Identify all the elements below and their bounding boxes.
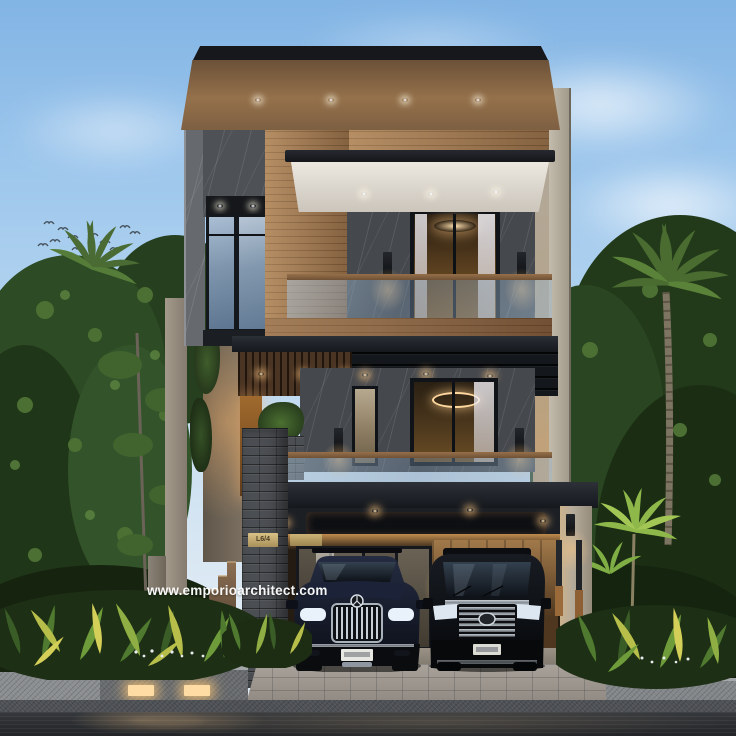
window-transom	[206, 234, 268, 236]
roof-soffit-wood	[181, 60, 560, 130]
planting-bed-mid	[222, 596, 312, 668]
left-tower-soffit	[206, 196, 268, 214]
downlight	[255, 98, 261, 102]
downlight	[475, 98, 481, 102]
downlight	[493, 190, 499, 194]
watermark: www.emporioarchitect.com	[147, 583, 328, 598]
third-floor-canopy-soffit	[291, 162, 549, 212]
planter-step-light	[184, 685, 210, 696]
wheel	[437, 662, 461, 671]
side-mirror	[541, 598, 551, 609]
ring-chandelier	[432, 392, 480, 408]
planter-step-light	[128, 685, 154, 696]
downlight	[217, 204, 223, 208]
planting-bed-right	[556, 592, 736, 692]
downlight-warm	[372, 509, 378, 513]
carport-canopy-fascia	[254, 482, 598, 508]
roof-fascia	[193, 46, 548, 60]
downlight-warm	[467, 508, 473, 512]
side-mirror	[423, 598, 433, 609]
brand-emblem	[479, 613, 495, 625]
downlight	[402, 98, 408, 102]
curtain	[474, 382, 494, 462]
balcony2-glass-railing	[285, 458, 552, 484]
wet-road	[0, 712, 736, 736]
left-tower-window	[206, 214, 268, 332]
architectural-render: L6/4	[0, 0, 736, 736]
downlight	[250, 204, 256, 208]
house-sign: L6/4	[248, 533, 278, 547]
right-fin-wall	[549, 88, 571, 492]
wheel	[513, 662, 537, 671]
headlight	[515, 604, 541, 620]
door-mullion	[452, 382, 455, 462]
downlight	[361, 192, 367, 196]
balcony3-glass-railing	[287, 280, 552, 322]
wheel	[392, 660, 418, 671]
downlight-warm	[362, 373, 368, 377]
downlight	[428, 192, 434, 196]
downlight-warm	[540, 519, 546, 523]
left-fin-wall	[184, 114, 205, 346]
mid-canopy-fascia	[232, 336, 558, 352]
fog-light	[394, 650, 410, 656]
downlight	[328, 98, 334, 102]
gold-signage-strip	[290, 534, 322, 546]
headlight	[388, 608, 414, 621]
ceiling-coffer	[306, 512, 546, 536]
headlight	[433, 604, 459, 620]
third-floor-canopy-fascia	[285, 150, 555, 162]
downlight-warm	[423, 372, 429, 376]
van-car	[423, 542, 551, 672]
